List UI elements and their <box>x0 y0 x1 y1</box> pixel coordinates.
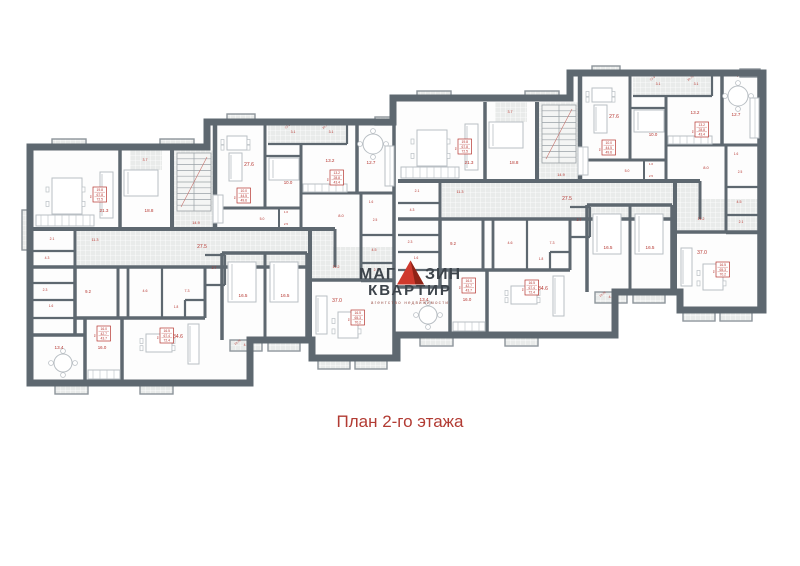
apartment-area-value: 72.5 <box>461 149 468 153</box>
furniture-chair <box>371 129 376 134</box>
apartment-area-value: 42.7 <box>100 332 107 336</box>
furniture-bed <box>489 122 523 148</box>
furniture-chair <box>426 325 431 330</box>
apartment-area-value: 28.8 <box>333 176 340 180</box>
stairs <box>542 105 576 163</box>
furniture-chair <box>73 361 78 366</box>
furniture-chair <box>247 140 250 145</box>
apartment-area-value: 67.8 <box>461 145 468 149</box>
room-area-label: 37.0 <box>697 250 707 256</box>
apartment-area-value: 10.0 <box>240 189 247 193</box>
furniture-chair <box>221 145 224 150</box>
furniture-chair <box>332 329 335 334</box>
stairs <box>177 153 211 211</box>
furniture-chair <box>447 139 450 144</box>
room-area-label: 27.6 <box>609 114 619 120</box>
tile-floor <box>268 125 347 143</box>
room-area-label: 3.7 <box>143 158 148 162</box>
room-area-label: 12.7 <box>367 160 376 165</box>
apartment-area-value: 49.6 <box>605 150 612 154</box>
room-area-label: 13.2 <box>691 110 700 115</box>
room-area-label: 3.1 <box>291 130 296 134</box>
furniture-chair <box>247 145 250 150</box>
room-area-label: 27.5 <box>562 196 572 202</box>
room-area-label: 18.8 <box>145 208 154 213</box>
room-area-label: 37.0 <box>332 298 342 304</box>
furniture-chair <box>221 140 224 145</box>
furniture-chair <box>505 298 508 303</box>
room-area-label: 21.3 <box>465 160 474 165</box>
room-area-label: 8.0 <box>338 213 344 218</box>
furniture-table <box>417 130 447 166</box>
apartment-area-value: 19.8 <box>461 140 468 144</box>
apartment-area-value: 16.0 <box>465 279 472 283</box>
furniture-counter <box>385 146 394 186</box>
room-area-label: 13.4 <box>55 345 64 350</box>
room-area-label: 1.8 <box>539 257 544 261</box>
furniture-round-table <box>419 306 437 324</box>
room-area-label: 3.1 <box>656 82 661 86</box>
tile-floor <box>633 77 712 95</box>
furniture-chair <box>411 153 414 158</box>
furniture-chair <box>612 92 615 97</box>
apartment-area-value: 16.0 <box>100 327 107 331</box>
room-area-label: 14.9 <box>557 173 564 177</box>
room-area-label: 1.6 <box>649 162 654 166</box>
furniture-round-table <box>728 86 748 106</box>
room-area-label: 16.0 <box>98 345 107 350</box>
apartment-area-value: 44.5 <box>605 146 612 150</box>
apartment-area-value: 43.7 <box>100 336 107 340</box>
room-area-label: 21.3 <box>100 208 109 213</box>
apartment-area-value: 67.4 <box>163 334 170 338</box>
room-area-label: 1.6 <box>369 200 374 204</box>
room-area-label: 5.0 <box>625 169 630 173</box>
furniture-counter <box>36 215 94 226</box>
furniture-chair <box>332 319 335 324</box>
furniture-chair <box>46 187 49 192</box>
room-area-label: 2.3 <box>43 288 48 292</box>
room-area-label: 10.0 <box>649 132 658 137</box>
apartment-area-value: 72.5 <box>96 197 103 201</box>
furniture-chair <box>358 142 363 147</box>
room-area-label: 27.5 <box>197 244 207 250</box>
furniture-chair <box>358 329 361 334</box>
apartment-area-value: 43.4 <box>333 180 340 184</box>
apartment-area-value: 42.7 <box>465 284 472 288</box>
apartment-area-value: 13.2 <box>698 123 705 127</box>
apartment-area-value: 65.3 <box>354 316 361 320</box>
furniture-chair <box>697 271 700 276</box>
apartment-area-value: 70.2 <box>354 320 361 324</box>
furniture-chair <box>723 281 726 286</box>
apartment-area-value: 28.8 <box>698 128 705 132</box>
room-area-label: 4.3 <box>410 208 415 212</box>
room-area-label: 1.6 <box>734 152 739 156</box>
watermark-word1-left: МАГ <box>359 267 396 283</box>
room-area-label: 16.5 <box>239 293 248 298</box>
apartment-area-value: 19.8 <box>96 188 103 192</box>
room-area-label: 1.6 <box>284 210 289 214</box>
apartment-area-value: 67.4 <box>528 286 535 290</box>
apartment-area-value: 16.5 <box>354 311 361 315</box>
furniture-chair <box>411 139 414 144</box>
furniture-chair <box>140 339 143 344</box>
room-area-label: 2.3 <box>408 240 413 244</box>
room-area-label: 7.3 <box>185 289 190 293</box>
apartment-area-value: 13.2 <box>333 171 340 175</box>
furniture-bed <box>124 170 158 196</box>
furniture-chair <box>371 155 376 160</box>
room-area-label: 2.1 <box>415 189 420 193</box>
furniture-chair <box>697 281 700 286</box>
furniture-chair <box>140 346 143 351</box>
room-area-label: 2.5 <box>738 170 743 174</box>
apartment-area-value: 16.5 <box>719 263 726 267</box>
room-area-label: 11.3 <box>91 238 98 242</box>
room-area-label: 2.5 <box>649 174 654 178</box>
room-area-label: 7.3 <box>550 241 555 245</box>
furniture-chair <box>612 97 615 102</box>
room-area-label: 16.5 <box>281 293 290 298</box>
room-area-label: 2.5 <box>373 218 378 222</box>
room-area-label: 3.7 <box>508 110 513 114</box>
apartment-area-value: 65.3 <box>719 268 726 272</box>
room-area-label: 9.2 <box>85 289 91 294</box>
room-area-label: 4.5 <box>372 248 377 252</box>
room-area-label: 34.6 <box>173 334 183 340</box>
room-area-label: 18.8 <box>510 160 519 165</box>
room-area-label: 2.1 <box>50 237 55 241</box>
furniture-chair <box>736 107 741 112</box>
floor-plan-page: 19.867.872.5кв16.042.743.7кв16.567.472.4… <box>0 0 800 566</box>
room-area-label: 11.3 <box>456 190 463 194</box>
apartment-area-value: 72.4 <box>528 290 535 294</box>
watermark-line2: КВАРТИР <box>354 283 466 299</box>
plan-caption: План 2-го этажа <box>0 412 800 432</box>
watermark-line1: МАГ ЗИН <box>354 258 466 283</box>
watermark-word1-right: ЗИН <box>425 267 461 283</box>
furniture-counter <box>401 167 459 178</box>
furniture-counter <box>750 98 759 138</box>
furniture-bed <box>269 158 299 180</box>
apartment-area-value: 67.8 <box>96 193 103 197</box>
room-area-label: 12.7 <box>732 112 741 117</box>
room-area-label: 2.7 <box>212 266 217 270</box>
furniture-chair <box>172 346 175 351</box>
apartment-area-value: 43.4 <box>698 132 705 136</box>
agency-logo-triangle-icon <box>397 260 424 285</box>
furniture-bed <box>634 110 664 132</box>
apartment-area-value: 44.5 <box>240 194 247 198</box>
room-area-label: 5.0 <box>260 217 265 221</box>
apartment-area-value: 43.7 <box>465 288 472 292</box>
apartment-area-value: 10.0 <box>605 141 612 145</box>
room-area-label: 3.1 <box>329 130 334 134</box>
apartment-area-value: 16.5 <box>528 281 535 285</box>
furniture-table <box>592 88 612 102</box>
room-area-label: 10.0 <box>284 180 293 185</box>
apartment-area-value: 70.2 <box>719 272 726 276</box>
furniture-chair <box>61 373 66 378</box>
room-area-label: 1.8 <box>174 305 179 309</box>
room-area-label: 14.9 <box>192 221 199 225</box>
room-area-label: 34.6 <box>538 286 548 292</box>
room-area-label: 2.7 <box>577 218 582 222</box>
furniture-round-table <box>363 134 383 154</box>
watermark-tagline: агентство недвижимости <box>354 300 466 305</box>
furniture-chair <box>447 153 450 158</box>
room-area-label: 4.6 <box>508 241 513 245</box>
furniture-chair <box>537 298 540 303</box>
furniture-round-table <box>54 354 72 372</box>
furniture-table <box>227 136 247 150</box>
apartment-area-value: 16.5 <box>163 329 170 333</box>
furniture-chair <box>414 313 419 318</box>
furniture-chair <box>736 81 741 86</box>
room-area-label: 11.2 <box>697 217 704 221</box>
furniture-chair <box>505 291 508 296</box>
furniture-table <box>52 178 82 214</box>
room-area-label: 4.3 <box>45 256 50 260</box>
agency-watermark: МАГ ЗИН КВАРТИР агентство недвижимости <box>354 258 466 305</box>
furniture-chair <box>586 97 589 102</box>
room-area-label: 4.6 <box>143 289 148 293</box>
room-area-label: 27.6 <box>244 162 254 168</box>
furniture-chair <box>46 201 49 206</box>
room-area-label: 8.0 <box>703 165 709 170</box>
room-area-label: 9.2 <box>450 241 456 246</box>
room-area-label: 2.5 <box>284 222 289 226</box>
room-area-label: 13.2 <box>326 158 335 163</box>
furniture-chair <box>49 361 54 366</box>
furniture-chair <box>82 201 85 206</box>
furniture-chair <box>82 187 85 192</box>
room-area-label: 1.6 <box>49 304 54 308</box>
room-area-label: 2.1 <box>739 220 744 224</box>
apartment-area-value: 49.6 <box>240 198 247 202</box>
room-area-label: 3.1 <box>694 82 699 86</box>
apartment-area-value: 72.4 <box>163 338 170 342</box>
furniture-chair <box>438 313 443 318</box>
furniture-chair <box>586 92 589 97</box>
room-area-label: 16.5 <box>604 245 613 250</box>
room-area-label: 16.5 <box>646 245 655 250</box>
room-area-label: 11.2 <box>332 265 339 269</box>
furniture-chair <box>723 94 728 99</box>
room-area-label: 4.5 <box>737 200 742 204</box>
